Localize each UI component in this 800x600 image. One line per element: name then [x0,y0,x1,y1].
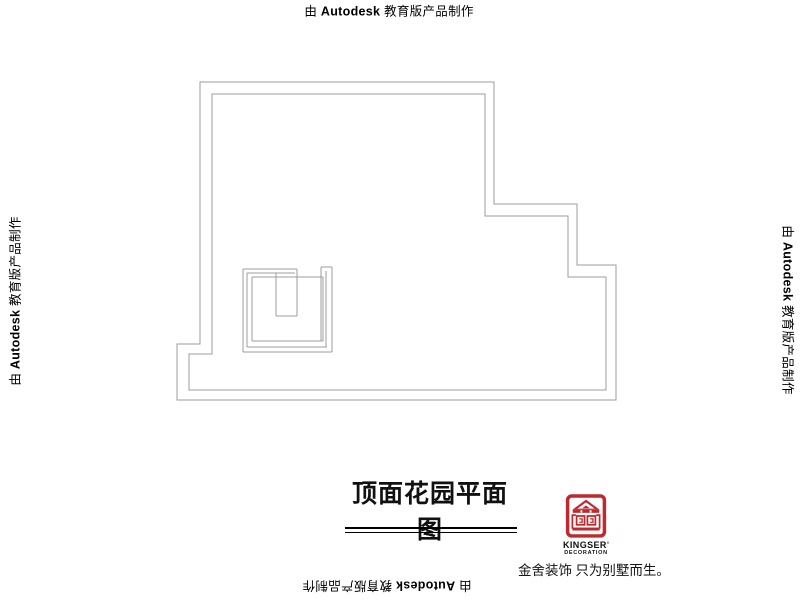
drawing-sheet: 由 Autodesk 教育版产品制作 由 Autodesk 教育版产品制作 由 … [0,0,800,600]
logo-tagline: 金舍装饰 只为别墅而生。 [518,559,678,579]
plan-outline-inner [189,94,606,390]
kingser-logo: KINGSER' DECORATION [563,494,609,556]
plan-outline-outer [177,82,616,400]
logo-brand: KINGSER' [563,540,609,550]
logo-subtitle: DECORATION [563,550,609,556]
kingser-pavilion-icon [565,494,607,539]
stair-structure [243,267,332,352]
logo-apostrophe: ' [607,540,610,550]
page-title: 顶面花园平面图 [342,474,518,546]
title-underline [345,527,517,533]
